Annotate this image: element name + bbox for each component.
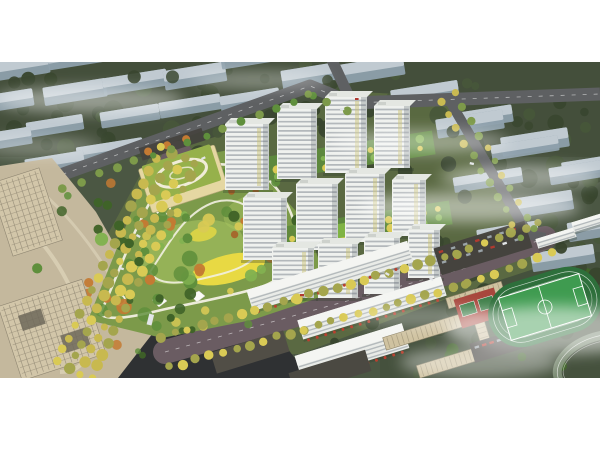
bottom-letterbox: [0, 378, 600, 450]
top-letterbox: [0, 0, 600, 62]
aerial-rendering: [0, 62, 600, 378]
